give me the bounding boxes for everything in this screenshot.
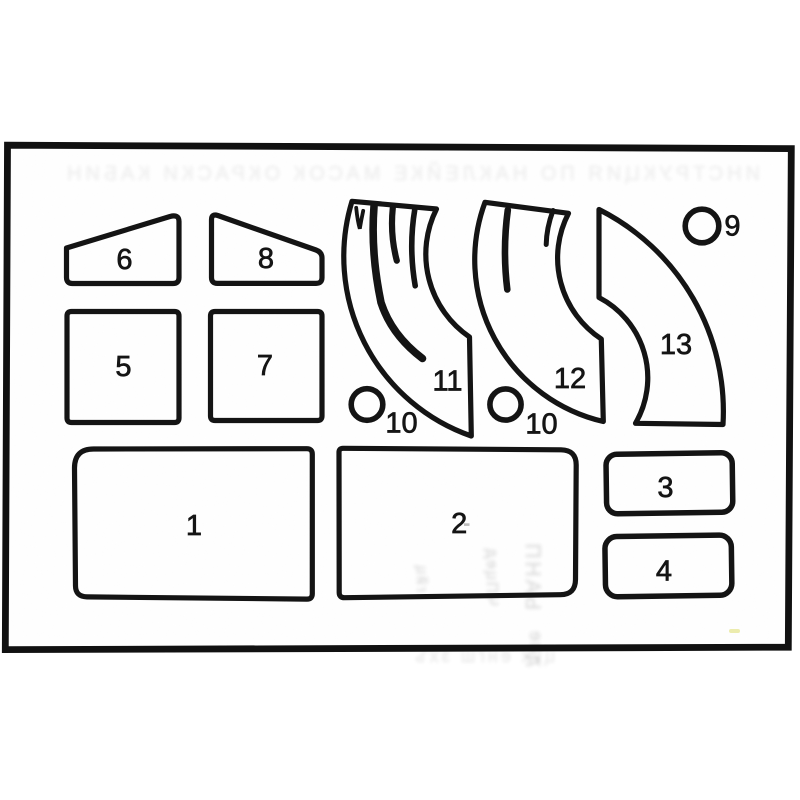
svg-text:9: 9: [724, 211, 740, 243]
svg-text:5: 5: [115, 351, 131, 383]
svg-text:8: 8: [258, 243, 274, 275]
svg-text:13: 13: [660, 329, 692, 361]
svg-text:3: 3: [657, 472, 673, 504]
svg-text:1: 1: [186, 510, 202, 542]
svg-text:11: 11: [432, 366, 462, 398]
svg-text:12: 12: [554, 363, 586, 395]
svg-text:10: 10: [385, 408, 417, 440]
svg-text:10: 10: [525, 409, 557, 441]
svg-text:6: 6: [116, 244, 132, 276]
svg-text:4: 4: [656, 556, 672, 588]
svg-text:7: 7: [257, 350, 273, 382]
svg-text:2: 2: [451, 508, 467, 540]
